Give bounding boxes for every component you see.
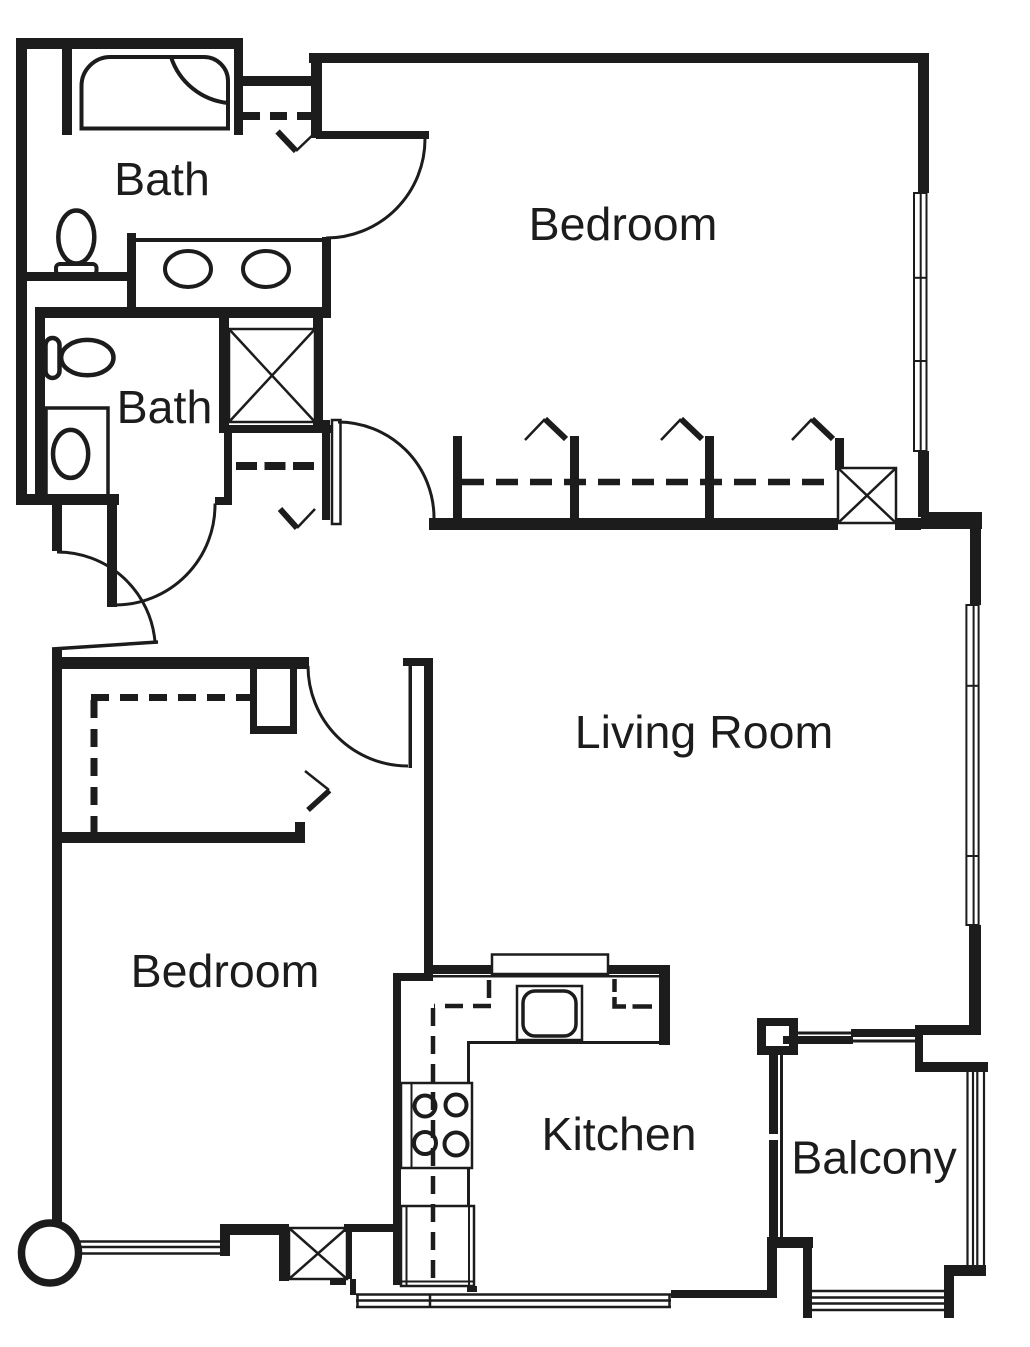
svg-text:Bath: Bath — [117, 381, 213, 433]
svg-text:Balcony: Balcony — [791, 1132, 957, 1184]
svg-text:Living Room: Living Room — [575, 706, 833, 758]
svg-text:Bedroom: Bedroom — [131, 945, 320, 997]
svg-text:Kitchen: Kitchen — [541, 1108, 696, 1160]
svg-text:Bath: Bath — [114, 153, 210, 205]
svg-text:Bedroom: Bedroom — [529, 198, 718, 250]
